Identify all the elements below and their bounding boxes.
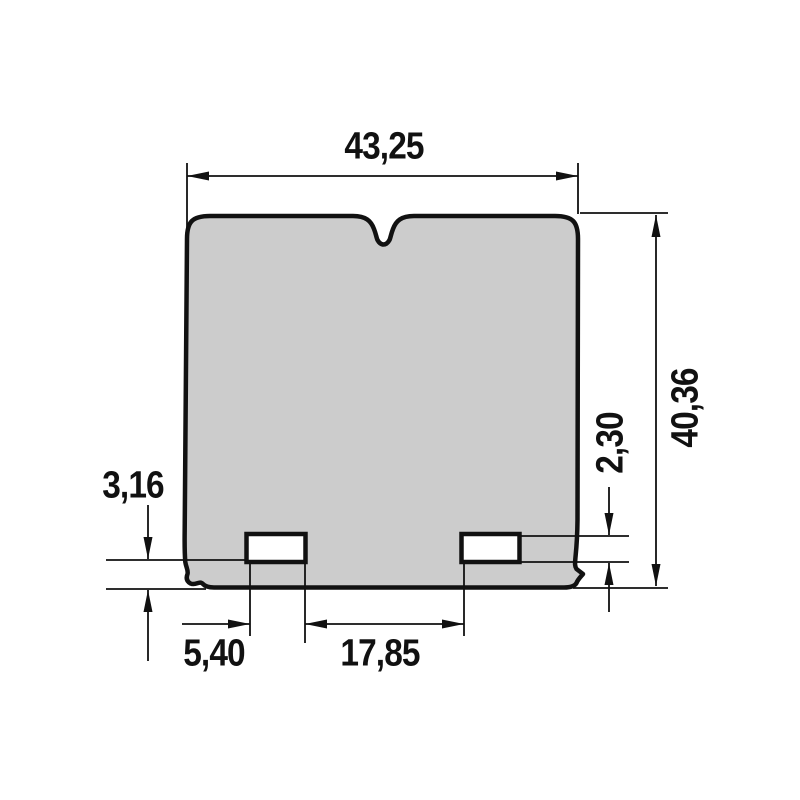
- dimension-label-overall-height: 40,36: [665, 368, 708, 447]
- technical-drawing-canvas: 43,25 40,36 2,30 3,16 5,40 17,85: [0, 0, 800, 800]
- slot-left: [247, 534, 306, 562]
- dimension-label-slot-width: 5,40: [183, 633, 245, 676]
- dimension-label-overall-width: 43,25: [344, 126, 423, 169]
- arrowhead-slot-width: [228, 620, 250, 629]
- dimension-label-slot-gap: 17,85: [340, 633, 419, 676]
- slot-right: [462, 534, 520, 562]
- arrowhead-offset-top: [144, 537, 153, 559]
- arrowhead-slot-height-top: [605, 513, 614, 535]
- arrowhead-width-right: [556, 172, 578, 181]
- arrowhead-slot-gap-right: [442, 620, 464, 629]
- arrowhead-width-left: [187, 172, 209, 181]
- dimension-label-slot-height: 2,30: [590, 412, 633, 474]
- arrowhead-offset-bottom: [144, 590, 153, 612]
- dimension-label-bottom-offset: 3,16: [102, 465, 164, 508]
- arrowhead-height-top: [652, 215, 661, 237]
- arrowhead-slot-height-bot: [605, 563, 614, 585]
- arrowhead-slot-gap-left: [305, 620, 327, 629]
- arrowhead-height-bottom: [652, 564, 661, 586]
